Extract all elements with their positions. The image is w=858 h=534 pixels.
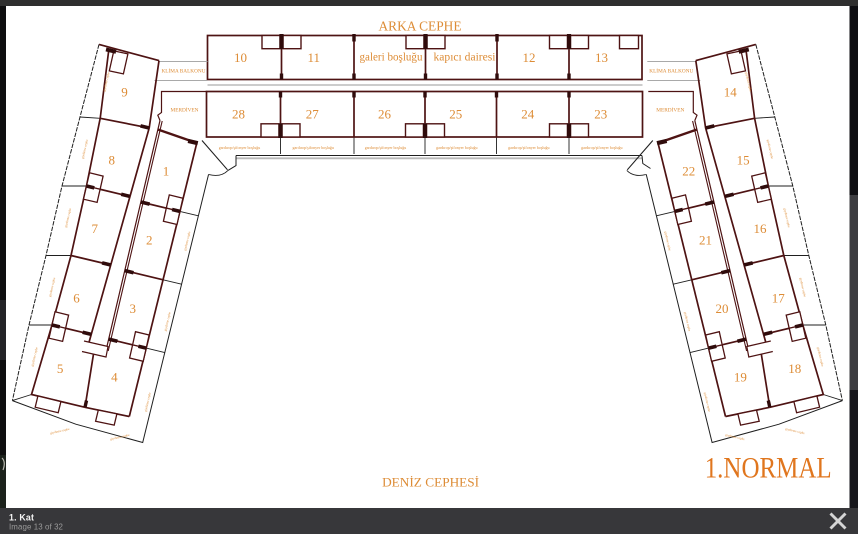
- svg-text:20: 20: [716, 301, 729, 316]
- svg-text:11: 11: [308, 50, 321, 65]
- svg-text:6: 6: [73, 291, 80, 306]
- svg-text:10: 10: [234, 50, 247, 65]
- svg-text:21: 21: [699, 233, 712, 248]
- svg-text:14: 14: [724, 85, 738, 100]
- svg-text:5: 5: [57, 361, 64, 376]
- svg-text:23: 23: [594, 107, 607, 122]
- svg-text:9: 9: [121, 85, 128, 100]
- svg-text:13: 13: [595, 50, 608, 65]
- svg-text:19: 19: [734, 370, 747, 385]
- svg-text:gardırop/şifonyer boşluğu: gardırop/şifonyer boşluğu: [365, 145, 406, 150]
- svg-text:ARKA CEPHE: ARKA CEPHE: [379, 19, 462, 34]
- svg-text:gardırop/şifonyer boşluğu: gardırop/şifonyer boşluğu: [508, 145, 549, 150]
- svg-text:DENİZ CEPHESİ: DENİZ CEPHESİ: [382, 475, 479, 490]
- svg-text:27: 27: [306, 107, 320, 122]
- svg-text:gardırop/şifonyer boşluğu: gardırop/şifonyer boşluğu: [581, 145, 622, 150]
- svg-text:1: 1: [163, 163, 170, 178]
- svg-text:16: 16: [754, 221, 768, 236]
- svg-text:25: 25: [449, 107, 462, 122]
- svg-text:24: 24: [521, 107, 535, 122]
- svg-text:2: 2: [146, 233, 153, 248]
- svg-text:8: 8: [108, 153, 115, 168]
- svg-text:MERDİVEN: MERDİVEN: [656, 108, 684, 114]
- svg-text:gardırop/şifonyer boşluğu: gardırop/şifonyer boşluğu: [292, 145, 333, 150]
- svg-text:3: 3: [130, 301, 137, 316]
- svg-text:17: 17: [772, 291, 786, 306]
- svg-text:KLİMA BALKONU: KLİMA BALKONU: [162, 69, 206, 75]
- svg-text:galeri boşluğu: galeri boşluğu: [360, 50, 423, 64]
- svg-text:22: 22: [682, 163, 695, 178]
- svg-text:kapıcı dairesi: kapıcı dairesi: [434, 50, 497, 64]
- svg-text:MERDİVEN: MERDİVEN: [171, 108, 199, 114]
- svg-text:12: 12: [523, 50, 536, 65]
- svg-text:KLİMA BALKONU: KLİMA BALKONU: [649, 69, 693, 75]
- svg-text:26: 26: [378, 107, 392, 122]
- svg-text:Image 13 of 32: Image 13 of 32: [9, 523, 63, 532]
- svg-text:1. Kat: 1. Kat: [9, 513, 34, 523]
- svg-text:4: 4: [111, 370, 118, 385]
- svg-text:7: 7: [92, 221, 99, 236]
- svg-text:28: 28: [232, 107, 245, 122]
- svg-text:gardırop/şifonyer boşluğu: gardırop/şifonyer boşluğu: [436, 145, 477, 150]
- svg-text:18: 18: [788, 361, 801, 376]
- svg-text:1.NORMAL: 1.NORMAL: [705, 452, 832, 484]
- svg-text:15: 15: [737, 153, 750, 168]
- svg-text:gardırop/şifonyer boşluğu: gardırop/şifonyer boşluğu: [219, 145, 260, 150]
